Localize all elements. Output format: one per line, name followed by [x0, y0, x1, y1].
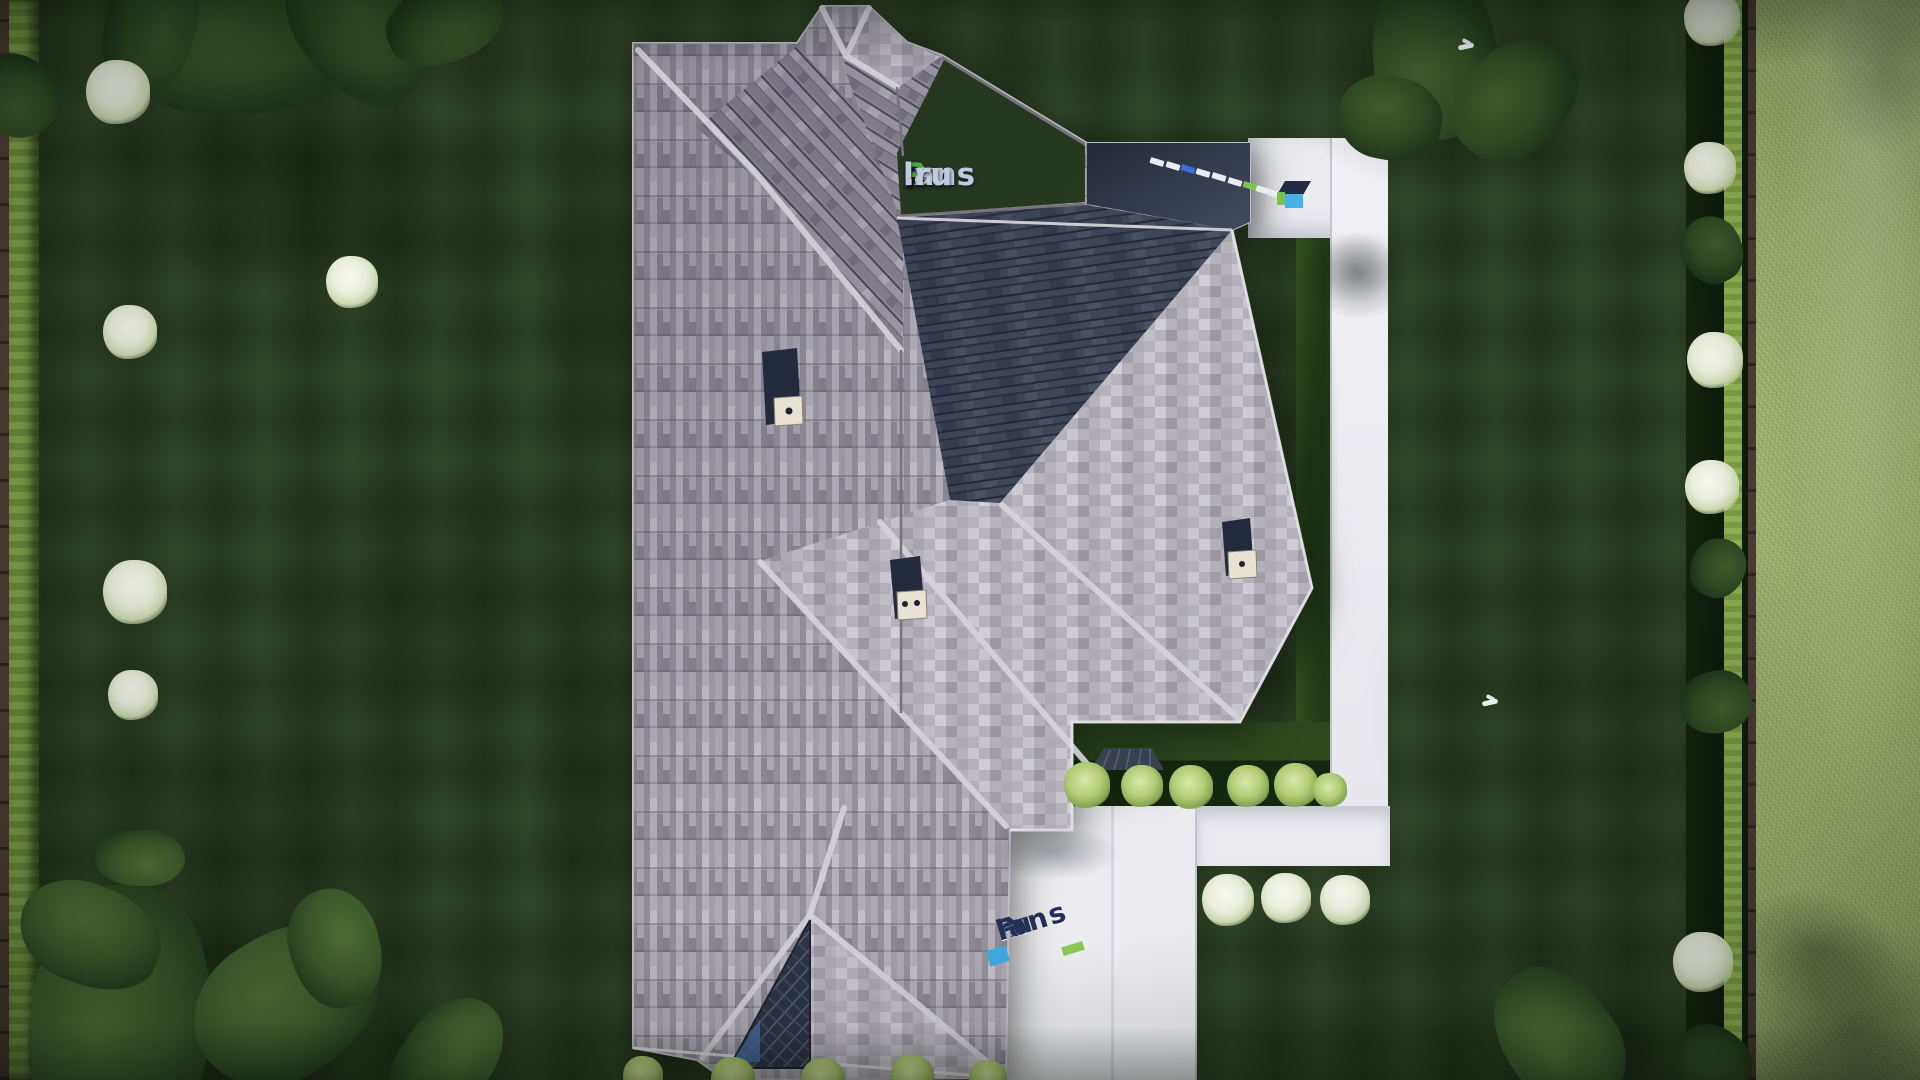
- green-bush: [1227, 765, 1269, 807]
- watermark-letter: .ru: [903, 157, 952, 193]
- overhang-shadow: [982, 825, 1122, 880]
- green-bush: [1169, 765, 1213, 809]
- green-bush: [1121, 765, 1163, 807]
- white-flower-bush: [103, 305, 157, 359]
- green-bush: [1274, 763, 1318, 807]
- white-flower-bush: [1261, 873, 1311, 923]
- aerial-house-render: FixPlans.ru FixPlans.ru: [0, 0, 1920, 1080]
- tree: [95, 829, 186, 887]
- white-flower-bush: [103, 560, 167, 624]
- white-flower-bush: [1320, 875, 1370, 925]
- white-flower-bush: [108, 670, 158, 720]
- white-flower-bush: [1684, 142, 1736, 194]
- white-flower-bush: [1687, 332, 1743, 388]
- chimney-1: [762, 348, 803, 426]
- watermark-cube-side: [1277, 192, 1285, 205]
- watermark-cube-front: [1285, 194, 1303, 208]
- white-flower-bush: [1202, 874, 1254, 926]
- white-flower-bush: [1685, 460, 1739, 514]
- white-flower-bush: [326, 256, 378, 308]
- white-flower-bush: [86, 60, 150, 124]
- green-bush: [1064, 762, 1110, 808]
- green-bush: [1313, 773, 1347, 807]
- overhang-shadow: [1315, 233, 1395, 303]
- white-flower-bush: [1673, 932, 1733, 992]
